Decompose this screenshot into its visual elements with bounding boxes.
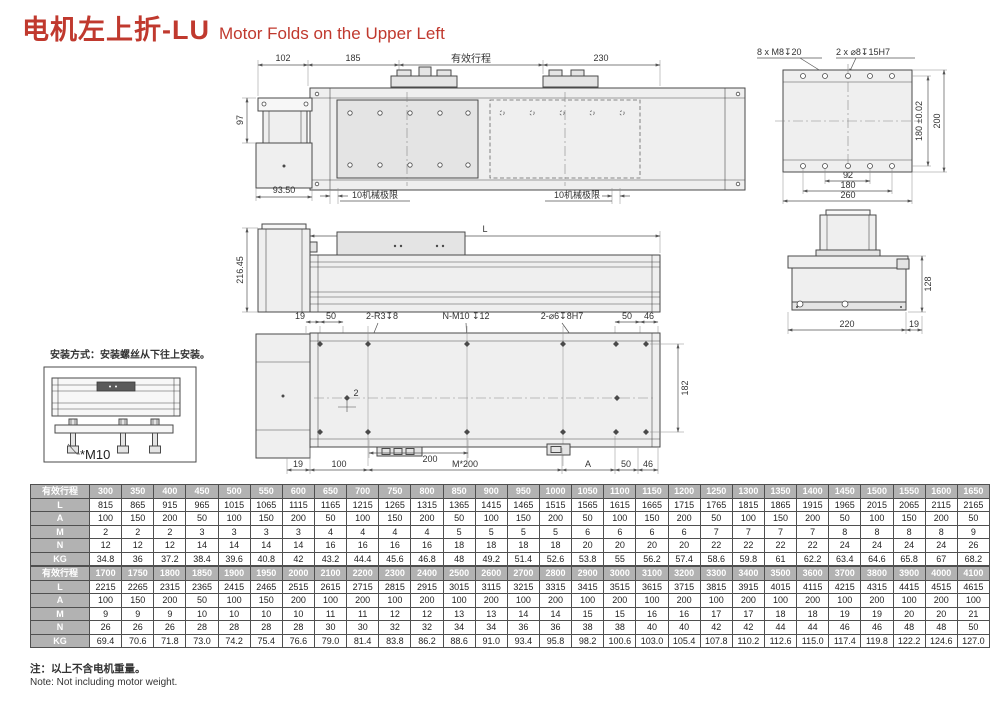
spec-cell: 18 [443,539,475,553]
spec-cell: 3900 [893,567,925,581]
spec-cell: 3315 [539,580,571,594]
spec-cell: 1615 [604,498,636,512]
spec-cell: 1400 [797,485,829,499]
spec-cell: 3115 [475,580,507,594]
dim-label: 180 [840,180,855,190]
spec-cell: 1315 [411,498,443,512]
spec-cell: 22 [764,539,796,553]
spec-cell: 600 [282,485,314,499]
row-label: N [31,539,90,553]
rail-body-bottom-view [310,333,660,447]
spec-cell: 4000 [925,567,957,581]
spec-cell: 200 [282,512,314,526]
spec-cell: 24 [925,539,957,553]
spec-cell: 1565 [572,498,604,512]
spec-row: KG34.83637.238.439.640.84243.244.445.646… [31,552,990,566]
spec-cell: 22 [700,539,732,553]
spec-cell: 200 [347,594,379,608]
spec-cell: 20 [893,607,925,621]
spec-cell: 100 [314,594,346,608]
spec-cell: 1350 [764,485,796,499]
spec-cell: 24 [829,539,861,553]
spec-cell: 1600 [925,485,957,499]
spec-cell: 3500 [764,567,796,581]
spec-cell: 20 [604,539,636,553]
spec-cell: 76.6 [282,634,314,648]
connector-block [547,444,570,455]
row-label: N [31,621,90,635]
spec-cell: 105.4 [668,634,700,648]
spec-table-1: 有效行程300350400450500550600650700750800850… [30,484,990,566]
spec-cell: 16 [636,607,668,621]
install-note-text: 安装方式：安装螺丝从下往上安装。 [50,348,210,361]
spec-cell: 100 [636,594,668,608]
spec-cell: 200 [797,512,829,526]
latch-block [897,259,909,269]
spec-cell: 12 [379,607,411,621]
row-label: L [31,580,90,594]
spec-cell: 48 [443,552,475,566]
spec-cell: 50 [186,512,218,526]
spec-cell: 200 [732,594,764,608]
spec-cell: 1850 [186,567,218,581]
dim-label: M*200 [452,459,478,469]
spec-cell: 18 [539,539,571,553]
spec-cell: 1550 [893,485,925,499]
spec-cell: 1215 [347,498,379,512]
spec-cell: 4315 [861,580,893,594]
spec-cell: 46.8 [411,552,443,566]
spec-cell: 7 [764,525,796,539]
spec-cell: 150 [250,594,282,608]
spec-cell: 71.8 [154,634,186,648]
spec-cell: 200 [668,594,700,608]
spec-cell: 100 [507,594,539,608]
spec-cell: 112.6 [764,634,796,648]
spec-cell: 965 [186,498,218,512]
spec-cell: 100 [700,594,732,608]
spec-cell: 58.6 [700,552,732,566]
spec-cell: 45.6 [379,552,411,566]
spec-cell: 110.2 [732,634,764,648]
limit-switch-block-left [391,67,457,87]
spec-cell: 750 [379,485,411,499]
spec-cell: 1650 [957,485,989,499]
spec-cell: 3515 [604,580,636,594]
spec-cell: 7 [797,525,829,539]
spec-cell: 3000 [604,567,636,581]
spec-cell: 16 [668,607,700,621]
spec-cell: 18 [797,607,829,621]
spec-cell: 34.8 [90,552,122,566]
dim-label: 50 [621,459,631,469]
spec-cell: 4 [379,525,411,539]
side-view: L 216.45 [235,224,660,312]
spec-cell: 28 [186,621,218,635]
spec-row: N262626282828283030323234343636383840404… [31,621,990,635]
spec-row: 有效行程170017501800185019001950200021002200… [31,567,990,581]
datasheet-page: 电机左上折-LU Motor Folds on the Upper Left 1… [0,0,1000,710]
spec-cell: 50 [700,512,732,526]
spec-cell: 44 [764,621,796,635]
spec-cell: 73.0 [186,634,218,648]
spec-cell: 2065 [893,498,925,512]
row-label: KG [31,552,90,566]
row-label: A [31,594,90,608]
spec-cell: 8 [925,525,957,539]
spec-cell: 1200 [668,485,700,499]
spec-cell: 8 [893,525,925,539]
spec-cell: 1800 [154,567,186,581]
spec-cell: 64.6 [861,552,893,566]
spec-cell: 1365 [443,498,475,512]
spec-cell: 2165 [957,498,989,512]
hole-callout: 2 x ⌀8↧15H7 [836,47,890,57]
spec-row: M999101010101111121213131414151516161717… [31,607,990,621]
spec-cell: 28 [282,621,314,635]
spec-cell: 32 [411,621,443,635]
spec-cell: 18 [764,607,796,621]
spec-cell: 1300 [732,485,764,499]
spec-cell: 17 [732,607,764,621]
spec-cell: 3700 [829,567,861,581]
spec-cell: 3300 [700,567,732,581]
spec-cell: 3015 [443,580,475,594]
spec-cell: 14 [218,539,250,553]
limit-switch-block-right [543,70,598,87]
dim-label: 46 [644,311,654,321]
spec-cell: 48 [925,621,957,635]
spec-cell: 75.4 [250,634,282,648]
spec-cell: 3600 [797,567,829,581]
spec-cell: 1000 [539,485,571,499]
spec-cell: 12 [122,539,154,553]
spec-cell: 117.4 [829,634,861,648]
spec-cell: 100 [893,594,925,608]
dim-label: 92 [843,170,853,180]
spec-cell: 4 [411,525,443,539]
spec-cell: 34 [475,621,507,635]
dim-label: 19 [295,311,305,321]
limit-label: 10机械极限 [352,189,398,200]
spec-cell: 550 [250,485,282,499]
spec-cell: 50 [829,512,861,526]
spec-cell: 51.4 [507,552,539,566]
spec-cell: 14 [539,607,571,621]
spec-cell: 200 [861,594,893,608]
dim-label: 50 [622,311,632,321]
body-block [792,268,906,302]
spec-cell: 200 [539,594,571,608]
spec-cell: 200 [475,594,507,608]
spec-cell: 103.0 [636,634,668,648]
spec-cell: 100 [764,594,796,608]
spec-cell: 200 [604,594,636,608]
spec-row: A100150200501001502005010015020050100150… [31,512,990,526]
spec-cell: 1465 [507,498,539,512]
spec-cell: 19 [861,607,893,621]
spec-cell: 200 [411,594,443,608]
spec-cell: 200 [539,512,571,526]
spec-cell: 2115 [925,498,957,512]
spec-cell: 37.2 [154,552,186,566]
spec-cell: 3400 [732,567,764,581]
spec-cell: 50 [572,512,604,526]
motor-end-view [816,210,880,256]
spec-cell: 5 [475,525,507,539]
dim-label: 46 [643,459,653,469]
spec-cell: 2015 [861,498,893,512]
dim-label-stroke: 有效行程 [451,52,491,65]
spec-cell: 200 [154,512,186,526]
spec-cell: 62.2 [797,552,829,566]
spec-cell: 100 [604,512,636,526]
dim-label: 220 [839,319,854,329]
dim-label: 230 [593,53,608,63]
spec-cell: 400 [154,485,186,499]
spec-cell: 69.4 [90,634,122,648]
spec-cell: 20 [636,539,668,553]
spec-cell: 200 [411,512,443,526]
spec-cell: 850 [443,485,475,499]
spec-cell: 4415 [893,580,925,594]
dim-label: 185 [345,53,360,63]
spec-cell: 6 [604,525,636,539]
spec-row: KG69.470.671.873.074.275.476.679.081.483… [31,634,990,648]
spec-cell: 100 [732,512,764,526]
dim-label: 102 [275,53,290,63]
spec-cell: 2500 [443,567,475,581]
spec-cell: 10 [218,607,250,621]
spec-cell: 22 [797,539,829,553]
spec-cell: 122.2 [893,634,925,648]
spec-cell: 74.2 [218,634,250,648]
spec-cell: 88.6 [443,634,475,648]
spec-cell: 2515 [282,580,314,594]
spec-cell: 28 [218,621,250,635]
spec-cell: 200 [925,594,957,608]
spec-cell: 4115 [797,580,829,594]
spec-cell: 1065 [250,498,282,512]
install-note: 安装方式：安装螺丝从下往上安装。 [44,348,210,462]
dim-label: 260 [840,190,855,200]
spec-cell: 200 [925,512,957,526]
spec-cell: 1665 [636,498,668,512]
spec-cell: 18 [507,539,539,553]
spec-cell: 2365 [186,580,218,594]
spec-cell: 40 [668,621,700,635]
spec-cell: 100 [90,512,122,526]
spec-cell: 67 [925,552,957,566]
spec-cell: 900 [475,485,507,499]
dim-label: 19 [909,319,919,329]
top-view: 102 185 有效行程 230 [235,52,745,204]
spec-cell: 44.4 [347,552,379,566]
spec-cell: 13 [475,607,507,621]
spec-cell: 450 [186,485,218,499]
spec-cell: 200 [154,594,186,608]
spec-cell: 17 [700,607,732,621]
spec-cell: 1965 [829,498,861,512]
row-label: KG [31,634,90,648]
motor-top-view [256,98,312,188]
spec-cell: 3100 [636,567,668,581]
spec-cell: 2615 [314,580,346,594]
limit-label: 10机械极限 [554,189,600,200]
spec-cell: 3200 [668,567,700,581]
spec-cell: 100 [475,512,507,526]
dim-label: A [585,459,591,469]
footnote: 注：以上不含电机重量。 Note: Not including motor we… [30,661,177,688]
spec-cell: 2465 [250,580,282,594]
dim-label: 200 [422,454,437,464]
spec-cell: 5 [539,525,571,539]
spec-row: 有效行程300350400450500550600650700750800850… [31,485,990,499]
spec-table-2: 有效行程170017501800185019001950200021002200… [30,566,990,648]
spec-cell: 2 [90,525,122,539]
spec-cell: 3615 [636,580,668,594]
dim-label: 128 [923,276,933,291]
spec-cell: 81.4 [347,634,379,648]
spec-cell: 36 [539,621,571,635]
spec-cell: 42 [282,552,314,566]
spec-cell: 68.2 [957,552,989,566]
spec-cell: 915 [154,498,186,512]
spec-cell: 48 [893,621,925,635]
spec-cell: 95.8 [539,634,571,648]
spec-cell: 22 [732,539,764,553]
spec-cell: 9 [957,525,989,539]
spec-cell: 26 [957,539,989,553]
row-label: M [31,525,90,539]
rear-end-view: 8 x M8↧20 2 x ⌀8↧15H7 180 ±0.02 2 [757,47,947,204]
carriage-plate [337,100,478,178]
spec-cell: 4 [314,525,346,539]
spec-cell: 3 [250,525,282,539]
dim-label: 50 [326,311,336,321]
spec-cell: 200 [668,512,700,526]
spec-cell: 16 [411,539,443,553]
spec-row: N121212141414141616161618181818202020202… [31,539,990,553]
spec-row: L221522652315236524152465251526152715281… [31,580,990,594]
spec-cell: 815 [90,498,122,512]
spec-cell: 107.8 [700,634,732,648]
spec-cell: 3415 [572,580,604,594]
dim-label: L [482,224,487,234]
spec-cell: 100 [379,594,411,608]
spec-cell: 2700 [507,567,539,581]
spec-cell: 26 [122,621,154,635]
spec-cell: 100 [861,512,893,526]
spec-cell: 10 [250,607,282,621]
row-label: A [31,512,90,526]
spec-cell: 38 [604,621,636,635]
spec-cell: 50 [186,594,218,608]
side-end-view: 128 220 19 [788,210,933,334]
spec-cell: 93.4 [507,634,539,648]
spec-cell: 1515 [539,498,571,512]
spec-cell: 1150 [636,485,668,499]
spec-cell: 865 [122,498,154,512]
spec-cell: 100 [218,594,250,608]
spec-cell: 3 [186,525,218,539]
motor-bottom-view [256,334,310,458]
spec-cell: 3800 [861,567,893,581]
mounting-screws [55,419,173,453]
spec-cell: 12 [90,539,122,553]
spec-cell: 46 [861,621,893,635]
spec-cell: 50 [957,512,989,526]
spec-cell: 350 [122,485,154,499]
spec-cell: 127.0 [957,634,989,648]
technical-drawing-canvas: 102 185 有效行程 230 [0,40,1000,485]
spec-cell: 4615 [957,580,989,594]
spec-cell: 3215 [507,580,539,594]
spec-cell: 56.2 [636,552,668,566]
spec-cell: 5 [443,525,475,539]
body-top-plate [788,256,908,268]
spec-cell: 16 [314,539,346,553]
spec-cell: 1265 [379,498,411,512]
spec-cell: 38.4 [186,552,218,566]
spec-cell: 30 [314,621,346,635]
spec-cell: 79.0 [314,634,346,648]
spec-cell: 2415 [218,580,250,594]
spec-cell: 2000 [282,567,314,581]
spec-cell: 2815 [379,580,411,594]
spec-cell: 11 [314,607,346,621]
spec-cell: 12 [411,607,443,621]
spec-cell: 4 [347,525,379,539]
spec-cell: 15 [572,607,604,621]
spec-row: A100150200501001502001002001002001002001… [31,594,990,608]
spec-cell: 11 [347,607,379,621]
spec-cell: 300 [90,485,122,499]
bottom-view: 19 50 2-R3↧8 N-M10 ↧12 2-⌀6↧8H7 50 46 [256,311,690,474]
rail-body-side-view [310,255,660,312]
spec-cell: 150 [507,512,539,526]
spec-cell: 1915 [797,498,829,512]
spec-cell: 63.4 [829,552,861,566]
dim-label: 200 [932,113,942,128]
motor-side-view [258,224,317,312]
footnote-en: Note: Not including motor weight. [30,677,177,688]
spec-cell: 9 [154,607,186,621]
spec-cell: 28 [250,621,282,635]
spec-cell: 1815 [732,498,764,512]
spec-cell: 650 [314,485,346,499]
carriage-side-view [337,232,465,255]
spec-cell: 1900 [218,567,250,581]
spec-cell: 7 [732,525,764,539]
spec-cell: 2315 [154,580,186,594]
spec-cell: 65.8 [893,552,925,566]
spec-cell: 10 [282,607,314,621]
spec-cell: 30 [347,621,379,635]
spec-row: L815865915965101510651115116512151265131… [31,498,990,512]
spec-cell: 1715 [668,498,700,512]
spec-cell: 86.2 [411,634,443,648]
spec-cell: 700 [347,485,379,499]
hole-callout: 2-⌀6↧8H7 [541,311,583,321]
spec-cell: 2 [122,525,154,539]
spec-cell: 50 [957,621,989,635]
spec-cell: 14 [250,539,282,553]
spec-cell: 4215 [829,580,861,594]
spec-cell: 119.8 [861,634,893,648]
spec-cell: 44 [797,621,829,635]
dim-label: 97 [235,115,245,125]
